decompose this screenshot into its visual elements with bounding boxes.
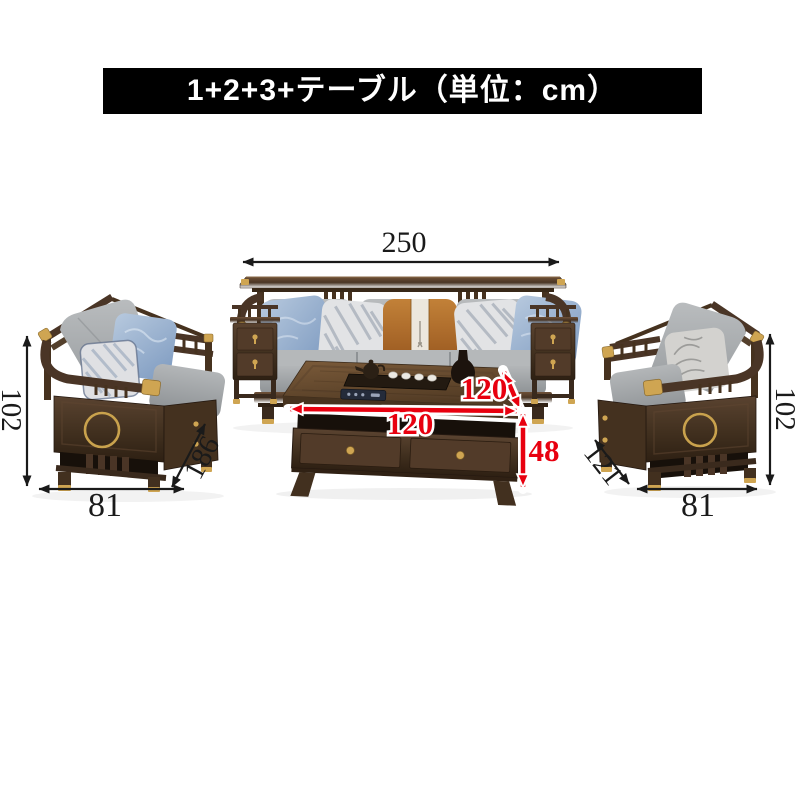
dim-table-height-label: 48	[529, 433, 560, 468]
gold-cap	[602, 346, 614, 358]
gold-foot	[270, 399, 277, 404]
dim-sofa2-height-label: 102	[0, 388, 27, 432]
sofa2-shadow	[32, 490, 224, 502]
teapot	[363, 363, 379, 379]
tea-cup	[402, 373, 411, 379]
dim-sofa2-width-label: 81	[88, 487, 122, 524]
gold-knob	[456, 451, 464, 459]
furniture-scene: 250 102 186 81 102	[0, 0, 800, 800]
dim-table-depth-label: 120	[461, 371, 508, 406]
remote-control	[341, 389, 386, 401]
gold-pull	[602, 415, 607, 420]
table-shadow	[276, 488, 532, 500]
tea-cup	[415, 374, 424, 380]
dim-sofa1-width-label: 81	[681, 487, 715, 524]
gold-foot	[262, 419, 274, 424]
sofa3-side-cabinet-left	[230, 305, 280, 404]
gold-band	[141, 379, 161, 396]
dim-sofa3-width-label: 250	[382, 226, 427, 259]
dim-table-width-label: 120	[387, 406, 434, 441]
gold-cap	[204, 334, 213, 342]
gold-foot	[531, 399, 538, 404]
gold-knob	[346, 446, 354, 454]
gold-foot	[532, 419, 544, 424]
dim-sofa1-height: 102	[769, 334, 800, 485]
dim-sofa2-height: 102	[0, 336, 27, 486]
gold-foot	[568, 399, 575, 404]
gold-band	[643, 379, 663, 396]
tea-cup	[389, 372, 398, 378]
gold-tip	[241, 279, 249, 285]
dim-sofa3-width: 250	[243, 226, 559, 262]
gold-pull	[193, 421, 198, 426]
dim-sofa1-height-label: 102	[769, 387, 800, 431]
sofa3-side-cabinet-right	[528, 305, 578, 404]
gold-foot	[744, 478, 756, 483]
product-dimension-diagram: 1+2+3+テーブル（単位：cm）	[0, 0, 800, 800]
gold-tip	[557, 279, 565, 285]
tea-cup	[428, 375, 437, 381]
gold-foot	[233, 399, 240, 404]
